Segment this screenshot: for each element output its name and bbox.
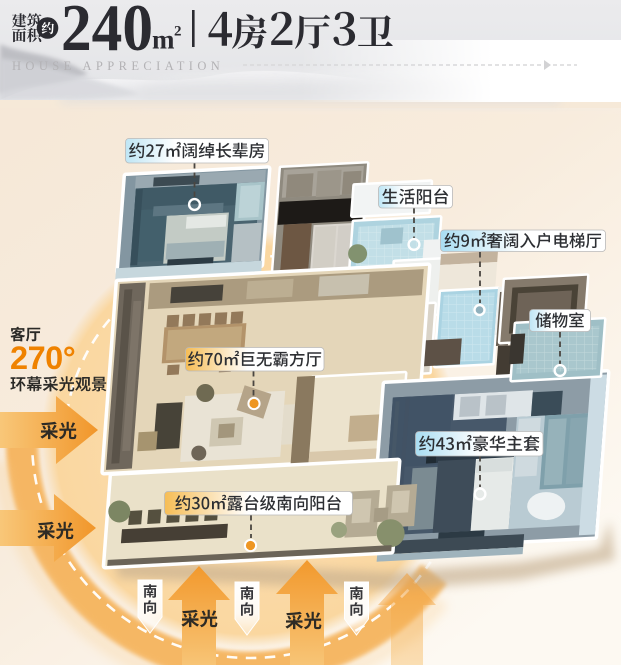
- svg-text:270°: 270°: [10, 340, 75, 376]
- svg-text:240: 240: [61, 0, 153, 65]
- svg-text:m: m: [152, 25, 175, 55]
- svg-text:HOUSE APPRECIATION: HOUSE APPRECIATION: [12, 59, 224, 73]
- svg-text:2: 2: [174, 24, 182, 40]
